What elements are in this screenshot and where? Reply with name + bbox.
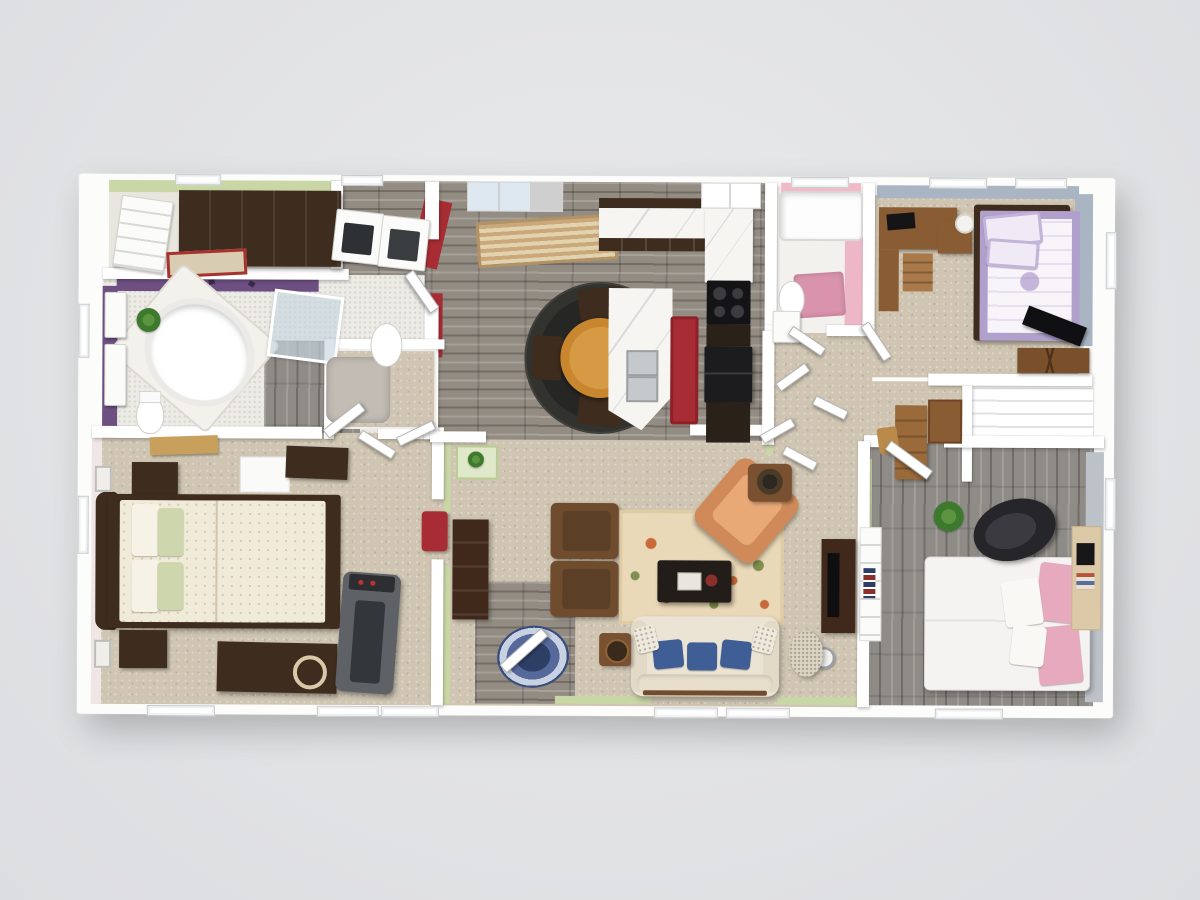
wall-art-2 xyxy=(94,640,111,668)
luggage-bench xyxy=(150,435,219,455)
side-table-basket xyxy=(748,464,792,502)
bath-plant xyxy=(136,308,160,332)
dryer-lid xyxy=(387,229,420,262)
window-bottom-bedroom3 xyxy=(935,708,1003,719)
refrigerator xyxy=(704,346,752,402)
sofa-side-table xyxy=(599,633,631,666)
washer-lid xyxy=(341,222,374,255)
bedroom3-wall-desk xyxy=(1071,526,1101,630)
bedroom3-white-pillow-1 xyxy=(1000,578,1044,629)
window-right-bedroom3 xyxy=(1105,478,1116,530)
window-bottom-master-2 xyxy=(317,706,379,717)
window-bottom-living-1 xyxy=(654,707,718,718)
coffee-table xyxy=(657,560,731,602)
window-right-bedroom2 xyxy=(1106,232,1117,289)
floorplan-render xyxy=(0,0,1200,900)
master-pillow-sham-2 xyxy=(131,560,159,612)
striped-runner-rug xyxy=(476,213,619,268)
window-left-bath xyxy=(78,304,89,358)
window-top-hallbath xyxy=(791,177,849,188)
armchair-brown-2 xyxy=(550,561,618,617)
armchair-1-cushion xyxy=(563,511,611,551)
sofa-blue-pillow-2 xyxy=(687,642,717,670)
coffee-table-bowl xyxy=(705,574,717,586)
armchair-brown-1 xyxy=(551,503,619,559)
decorative-pouf xyxy=(789,631,823,677)
pantry-door xyxy=(701,182,761,208)
telephone-table-plant xyxy=(468,451,484,467)
sofa xyxy=(631,616,779,697)
treadmill-belt xyxy=(350,600,386,684)
duvet-fold-line xyxy=(215,500,218,622)
window-top-bedroom2-a xyxy=(929,177,987,188)
window-left-bedroom xyxy=(78,496,89,554)
master-sage-bolster-2 xyxy=(157,562,183,610)
wall-bedroom2-bottom xyxy=(928,373,1092,386)
wall-nook-closet xyxy=(962,386,972,482)
window-top-laundry xyxy=(341,175,383,186)
living-wall-face-left-lower xyxy=(443,565,451,703)
wall-bedroom3-top-2 xyxy=(944,436,1104,449)
bedroom3-plant xyxy=(934,501,964,531)
armchair-2-cushion xyxy=(562,569,610,609)
island-sink-1 xyxy=(626,350,658,376)
side-table-top xyxy=(605,639,629,663)
sofa-wood-trim xyxy=(643,690,767,696)
red-runner-rug xyxy=(670,316,698,424)
lower-cabinet-dark xyxy=(706,324,750,346)
treadmill-console xyxy=(348,573,395,592)
master-sage-bolster-1 xyxy=(158,508,184,556)
bookshelf-books xyxy=(863,568,875,598)
treadmill xyxy=(335,571,402,695)
window-bottom-living-2 xyxy=(726,708,790,719)
cabinet-run-lower xyxy=(706,402,750,442)
bedroom2-laptop xyxy=(886,212,915,230)
sofa-floral-pillow-left xyxy=(632,624,660,654)
window-top-closet xyxy=(175,174,221,185)
chest-ring-detail xyxy=(293,655,328,690)
telephone-table xyxy=(456,445,498,479)
kitchen-window-blinds xyxy=(467,181,563,211)
living-wall-face-bottom-1 xyxy=(555,696,651,704)
coffee-table-magazine xyxy=(677,572,701,590)
nightstand-bottom xyxy=(119,630,167,668)
sofa-blue-pillow-3 xyxy=(720,639,753,670)
white-table xyxy=(240,456,290,492)
window-bottom-master-3 xyxy=(381,706,439,717)
counter-right-run xyxy=(705,208,753,282)
vanity-1 xyxy=(104,292,126,338)
bedroom2-pillow-2 xyxy=(986,238,1040,270)
media-chest xyxy=(216,641,337,694)
bedroom3-tv xyxy=(827,553,839,617)
bedroom3-laptop xyxy=(1076,543,1094,565)
washer xyxy=(331,209,384,266)
window-top-bedroom2-b xyxy=(1015,178,1067,189)
island-sink-2 xyxy=(626,376,658,402)
wall-living-left-lower xyxy=(431,559,444,705)
hall-wall-hutch xyxy=(928,399,962,443)
master-pillow-sham-1 xyxy=(132,504,160,556)
pedestal-sink xyxy=(370,323,402,367)
toilet-master xyxy=(136,396,164,434)
toilet-tank xyxy=(139,391,161,403)
living-wall-face-bottom-2 xyxy=(777,697,857,705)
vanity-2 xyxy=(104,344,126,406)
hall-bath-tub xyxy=(779,191,863,241)
cooktop xyxy=(707,280,751,324)
wall-hallbath-bedroom2-upper xyxy=(863,183,876,325)
bedroom3-white-pillow-2 xyxy=(1009,624,1047,667)
wall-kitchen-living-1 xyxy=(430,431,486,442)
dining-chair-west xyxy=(531,335,564,381)
closet-built-in-dresser xyxy=(112,195,174,274)
master-dresser xyxy=(285,446,348,480)
dryer xyxy=(377,215,430,272)
bed-footboard xyxy=(327,495,341,629)
bedroom3-books xyxy=(1076,573,1094,589)
living-wall-face-left-upper xyxy=(444,443,451,513)
wall-living-left-upper xyxy=(432,439,444,499)
media-console xyxy=(452,519,488,619)
bedroom2-shelf-clutter xyxy=(903,253,933,291)
basket xyxy=(757,469,783,495)
window-bottom-master-1 xyxy=(147,705,215,716)
bedroom2-tv-stand xyxy=(1017,348,1089,373)
bedroom3-tv-console xyxy=(821,539,855,633)
red-accent-chair xyxy=(422,511,448,551)
bedroom2-lamp xyxy=(955,214,975,234)
house-shell xyxy=(77,174,1115,719)
glass-shower xyxy=(267,289,345,365)
bedroom2-desk-return xyxy=(879,249,899,311)
wall-art-1 xyxy=(95,466,112,492)
bedroom3-bookshelf xyxy=(859,527,881,641)
